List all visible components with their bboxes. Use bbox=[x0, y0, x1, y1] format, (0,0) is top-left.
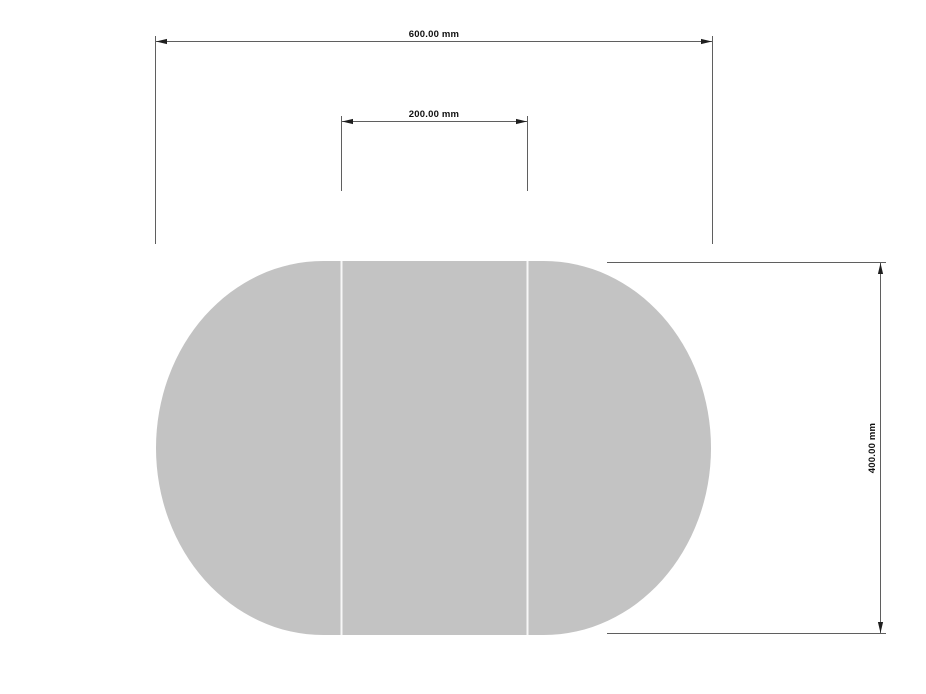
arrow-left-icon bbox=[342, 119, 353, 124]
arrow-right-icon bbox=[701, 39, 712, 44]
arrow-left-icon bbox=[156, 39, 167, 44]
arrow-right-icon bbox=[516, 119, 527, 124]
drawing-page: 600.00 mm 200.00 mm 400.00 mm bbox=[0, 0, 926, 694]
table-top-shape[interactable] bbox=[156, 261, 711, 635]
arrow-up-icon bbox=[878, 263, 883, 274]
table-top bbox=[156, 261, 711, 635]
dimension-label-leaf-width: 200.00 mm bbox=[409, 109, 459, 120]
drawing-canvas: 600.00 mm 200.00 mm 400.00 mm bbox=[0, 0, 926, 694]
dimension-leaf-width: 200.00 mm bbox=[342, 109, 528, 191]
arrow-down-icon bbox=[878, 622, 883, 633]
dimension-label-overall-width: 600.00 mm bbox=[409, 29, 459, 40]
dimension-overall-width: 600.00 mm bbox=[156, 29, 713, 244]
dimension-label-overall-depth: 400.00 mm bbox=[867, 423, 878, 473]
